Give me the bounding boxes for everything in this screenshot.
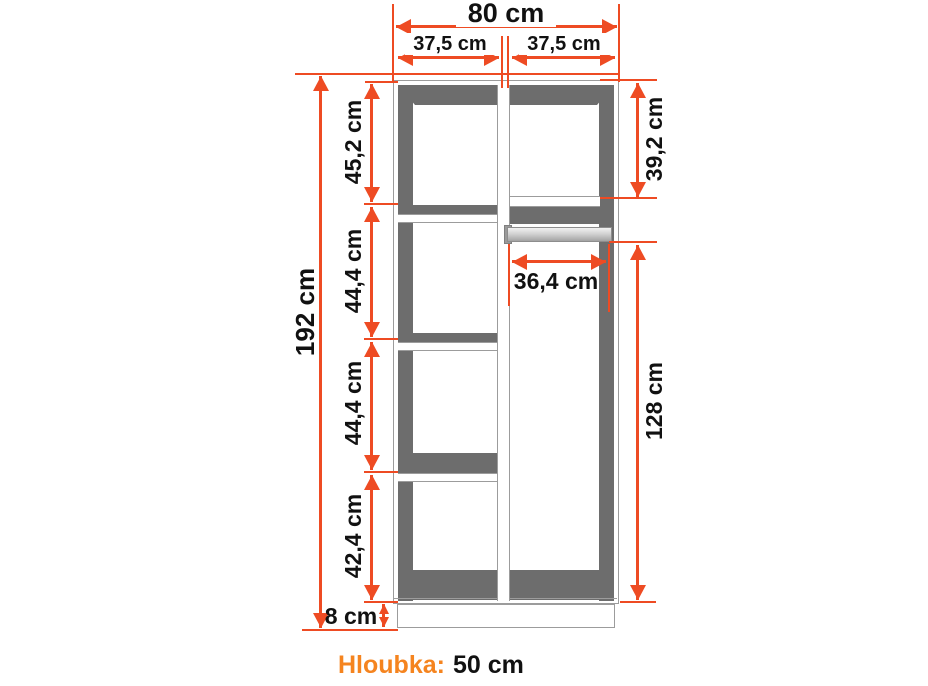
dim-tick-left-2: [364, 338, 398, 340]
dim-label-rod-width: 36,4 cm: [512, 268, 600, 294]
dim-tick-left-0: [365, 81, 398, 83]
left-compartment3-floor-shadow: [413, 453, 498, 474]
dim-label-left-section-2: 44,4 cm: [340, 216, 366, 326]
plinth: [397, 604, 615, 628]
dim-arrow-left-section-3: [370, 342, 373, 470]
dim-tick-left-1: [364, 203, 398, 205]
dim-tick-center-left: [501, 36, 503, 88]
right-top-shelf: [509, 196, 600, 207]
dim-tick-rod-level: [609, 241, 657, 243]
dim-arrow-plinth-height: [382, 604, 385, 627]
dim-tick-left-3: [364, 471, 398, 473]
right-side-panel-shadow: [599, 85, 614, 601]
dim-arrow-left-section-1: [370, 84, 373, 202]
dim-label-left-column-width: 37,5 cm: [405, 33, 495, 55]
dim-tick-left-outer: [392, 4, 394, 82]
depth-caption-value: 50 cm: [453, 651, 524, 679]
dim-arrow-left-section-4: [370, 475, 373, 600]
left-shelf-3: [398, 473, 505, 482]
dim-label-total-height: 192 cm: [291, 257, 319, 367]
dim-arrow-right-column-width: [512, 56, 615, 59]
wardrobe-dimension-diagram: 80 cm 37,5 cm 37,5 cm 192 cm 45,2 cm 44,…: [0, 0, 928, 686]
left-shelf-1: [398, 214, 505, 223]
dim-label-right-top-section: 39,2 cm: [641, 84, 667, 194]
dim-label-left-section-1: 45,2 cm: [340, 87, 366, 197]
dim-tick-rod-right: [608, 244, 610, 312]
depth-caption-label: Hloubka:: [338, 651, 445, 679]
dim-label-right-lower-section: 128 cm: [641, 346, 667, 456]
dim-label-total-width: 80 cm: [456, 0, 556, 27]
dim-tick-right-top: [600, 79, 657, 81]
dim-arrow-right-top-section: [636, 83, 639, 197]
dim-label-left-section-4: 42,4 cm: [340, 481, 366, 591]
dim-label-plinth-height: 8 cm: [322, 603, 380, 629]
dim-arrow-left-column-width: [398, 56, 499, 59]
dim-tick-bottom-long: [302, 629, 398, 631]
dim-tick-right-shelf: [600, 197, 657, 199]
dim-arrow-right-lower-section: [636, 245, 639, 600]
center-divider-panel: [497, 85, 510, 601]
dim-tick-center-right: [507, 36, 509, 88]
dim-arrow-rod-width: [512, 260, 606, 263]
dim-tick-top-long: [295, 73, 620, 75]
dim-arrow-left-section-2: [370, 207, 373, 337]
left-shelf-2: [398, 342, 505, 351]
wardrobe-carcass: [393, 80, 619, 604]
dim-tick-right-outer: [618, 4, 620, 82]
dim-tick-rod-left: [508, 244, 510, 306]
dim-tick-right-bottom: [620, 601, 656, 603]
dim-label-right-column-width: 37,5 cm: [519, 33, 609, 55]
depth-caption: Hloubka:50 cm: [338, 651, 524, 680]
right-top-shelf-shadow: [509, 207, 600, 224]
hanging-rod: [507, 227, 612, 242]
dim-label-left-section-3: 44,4 cm: [340, 348, 366, 458]
